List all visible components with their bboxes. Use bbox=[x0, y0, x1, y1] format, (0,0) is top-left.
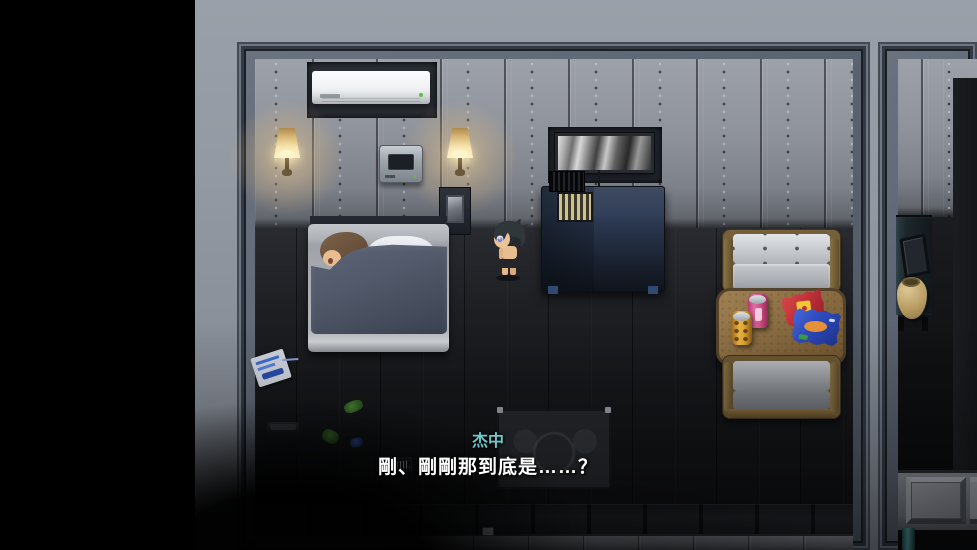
can-label bbox=[755, 308, 762, 322]
intercom-led bbox=[413, 175, 416, 178]
sofa-seat-cushion bbox=[733, 391, 830, 409]
can-lid bbox=[733, 312, 750, 321]
rug-corner-knob bbox=[497, 407, 503, 413]
speaker-name: 杰中 bbox=[288, 427, 688, 451]
wall-pipe bbox=[902, 528, 915, 550]
intercom-screen bbox=[388, 154, 414, 170]
shelf-leg bbox=[922, 317, 928, 331]
intercom-panel[interactable] bbox=[379, 145, 423, 183]
air-conditioner[interactable] bbox=[312, 71, 430, 104]
sofa-wood-rail bbox=[728, 409, 835, 418]
side-tile-inset-partial bbox=[970, 477, 977, 524]
intercom-buttons bbox=[385, 175, 395, 178]
ac-vent bbox=[322, 98, 420, 102]
lamp-base bbox=[282, 169, 292, 176]
sofa-arm bbox=[724, 362, 733, 412]
sofa-arm bbox=[724, 238, 733, 290]
sofa-arm bbox=[830, 238, 839, 290]
leaning-frame[interactable] bbox=[899, 233, 930, 278]
game-screen: 杰中 剛、剛剛那到底是……？ bbox=[0, 0, 977, 550]
bottom-wall-tiles bbox=[255, 534, 853, 550]
ac-power-led bbox=[419, 93, 423, 97]
player-character[interactable] bbox=[487, 219, 529, 283]
sofa-back-cushion bbox=[733, 361, 830, 391]
radiator-grille[interactable] bbox=[557, 192, 593, 222]
side-tile-inset bbox=[906, 477, 966, 524]
sleeper-mouth bbox=[328, 258, 333, 264]
chip-logo bbox=[804, 321, 827, 332]
sofa-top[interactable] bbox=[722, 229, 841, 293]
dresser-leg bbox=[648, 286, 658, 294]
wall-lamp-left[interactable] bbox=[270, 126, 304, 182]
lamp-base bbox=[455, 169, 465, 176]
light-switch[interactable] bbox=[482, 527, 494, 536]
magazine-print bbox=[261, 367, 284, 380]
bottom-wall-ledge bbox=[255, 504, 853, 534]
dresser-leg bbox=[548, 286, 558, 294]
soda-can-yellow[interactable] bbox=[732, 311, 752, 345]
chip-glint bbox=[829, 319, 835, 323]
player-sprite bbox=[487, 219, 529, 283]
letterbox-bar bbox=[0, 0, 195, 550]
appliance-grille bbox=[549, 171, 585, 192]
shelf-leg bbox=[898, 317, 904, 331]
jug-mouth bbox=[902, 277, 920, 287]
sofa-seat-cushion bbox=[733, 264, 830, 289]
can-lid bbox=[749, 295, 766, 304]
dialogue-text: 剛、剛剛那到底是……？ bbox=[288, 452, 688, 479]
wall-lamp-right[interactable] bbox=[443, 126, 477, 182]
wall-picture[interactable] bbox=[555, 133, 654, 173]
rug-corner-knob bbox=[605, 407, 611, 413]
chip-accent bbox=[798, 334, 808, 340]
sofa-bottom[interactable] bbox=[722, 355, 841, 419]
sofa-back-cushion bbox=[733, 234, 830, 264]
sofa-arm bbox=[830, 362, 839, 412]
photo-frame bbox=[446, 195, 464, 223]
